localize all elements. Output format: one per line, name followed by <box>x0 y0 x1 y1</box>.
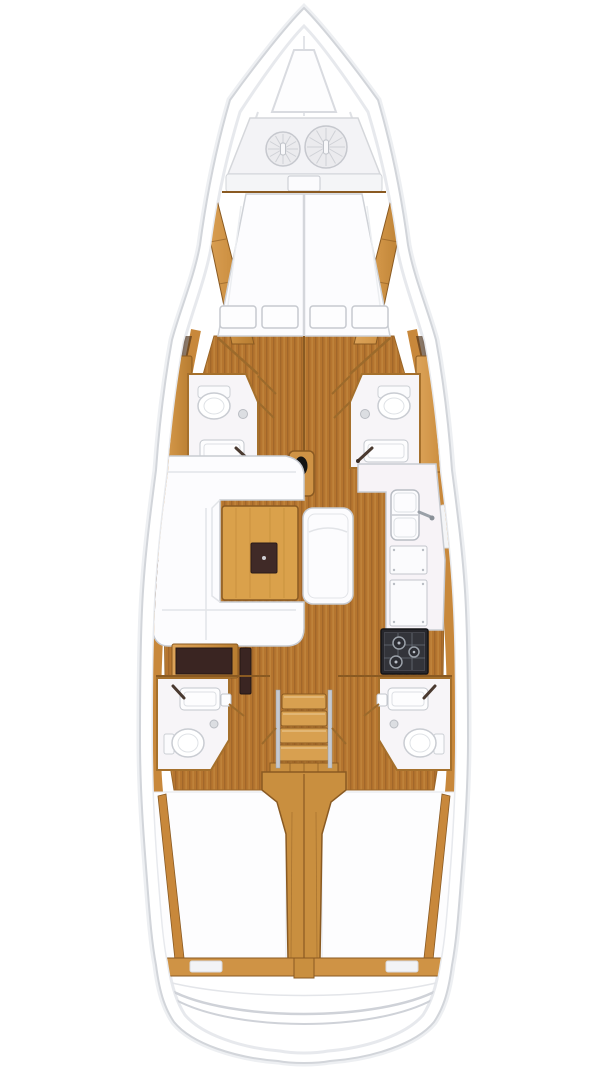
floor-plan-svg <box>0 0 608 1080</box>
instrument-panel <box>240 648 251 694</box>
sink <box>180 688 220 710</box>
beam-slot-port <box>190 961 222 972</box>
toilet <box>378 393 410 419</box>
rope-coil-port <box>266 132 300 166</box>
sink <box>388 688 428 710</box>
boat-floor-plan <box>0 0 608 1080</box>
anchor-locker <box>228 118 380 174</box>
counter-locker-top <box>390 546 427 574</box>
toilet <box>198 393 230 419</box>
steps-x4 <box>279 694 329 761</box>
island-bench <box>303 508 353 604</box>
toilet <box>404 729 436 757</box>
stove-3-burner <box>381 629 428 674</box>
shower-drain <box>239 410 248 419</box>
handrail-port <box>276 690 280 768</box>
rope-coil-starboard <box>305 126 347 168</box>
chart-desk <box>176 648 232 674</box>
aft-cabins <box>147 772 461 960</box>
shower-drain <box>210 720 218 728</box>
toilet <box>172 729 204 757</box>
shower-drain <box>390 720 398 728</box>
shower-drain <box>361 410 370 419</box>
beam-slot-starboard <box>386 961 418 972</box>
bulkhead-hatch <box>288 176 320 191</box>
counter-locker-bottom <box>390 580 427 626</box>
handrail-starboard <box>328 690 332 768</box>
interior <box>145 36 464 1024</box>
